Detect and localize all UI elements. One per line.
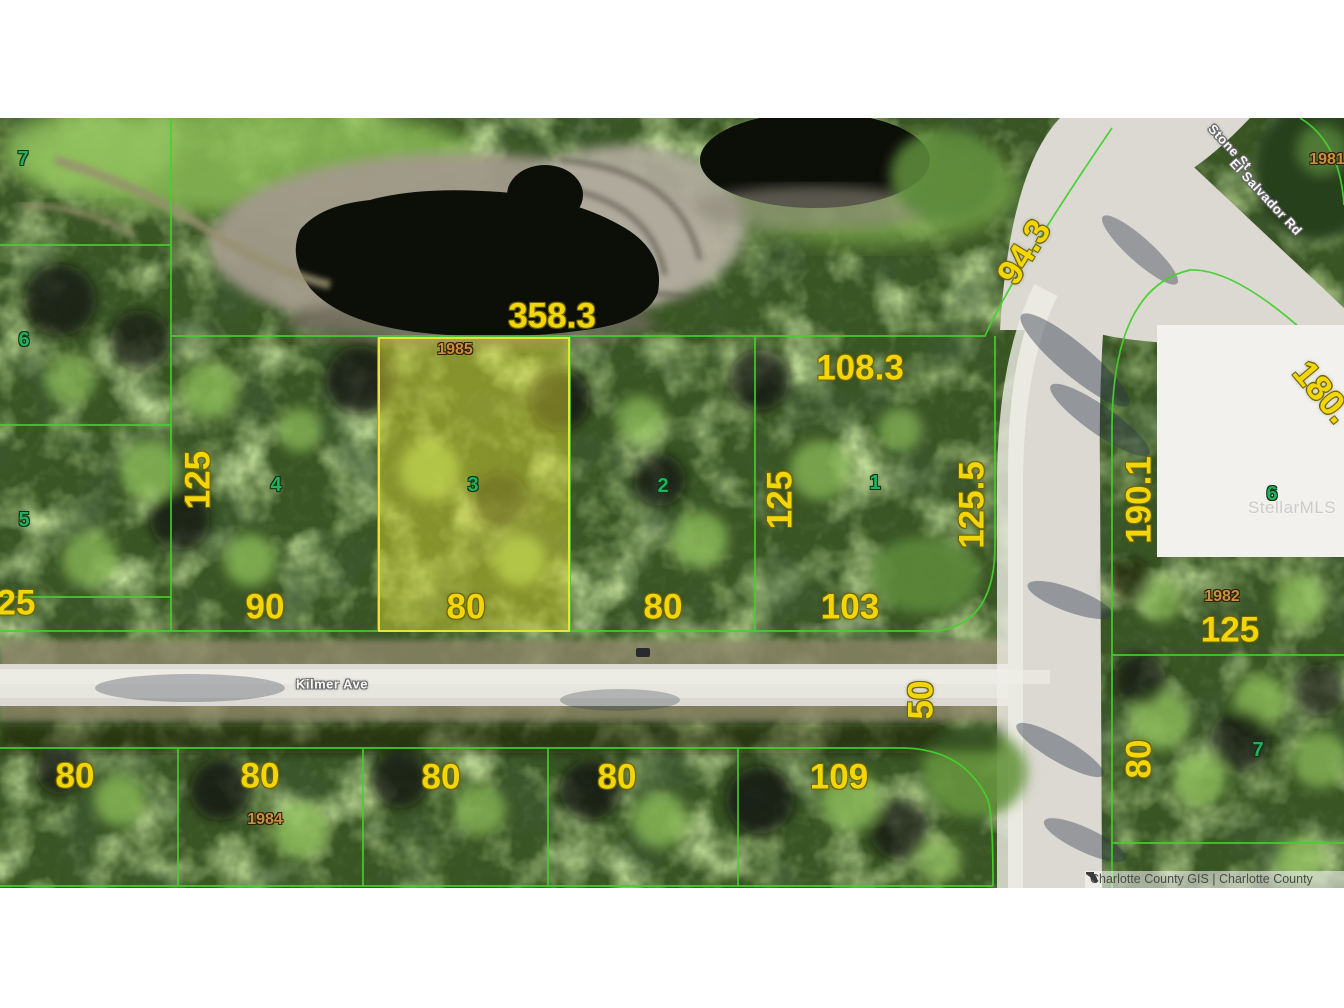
screenshot-stage: 358.3108.394.3125125125.5190.1180.259080… <box>0 0 1344 1008</box>
dimension-label-90: 90 <box>246 590 285 625</box>
parcel-number-6: 6 <box>18 330 29 350</box>
parcel-number-1: 1 <box>869 473 880 493</box>
dimension-label-80: 80 <box>56 759 95 794</box>
florida-state-icon <box>1085 871 1099 884</box>
block-year-label-1985: 1985 <box>437 342 473 358</box>
map-label-layer: 358.3108.394.3125125125.5190.1180.259080… <box>0 118 1344 888</box>
block-year-label-1984: 1984 <box>247 812 283 828</box>
parcel-number-3: 3 <box>467 475 478 495</box>
dimension-label-180-: 180. <box>1287 355 1344 430</box>
stellar-mls-watermark: StellarMLS <box>1248 498 1336 518</box>
street-name-label-kilmer-ave: Kilmer Ave <box>296 678 368 691</box>
dimension-label-190-1: 190.1 <box>1122 456 1157 544</box>
dimension-label-50: 50 <box>904 681 939 720</box>
dimension-label-108-3: 108.3 <box>816 351 904 386</box>
dimension-label-94-3: 94.3 <box>991 214 1057 290</box>
dimension-label-103: 103 <box>821 590 879 625</box>
dimension-label-125-5: 125.5 <box>955 461 990 549</box>
attribution-bar: Charlotte County GIS | Charlotte County <box>1085 871 1344 888</box>
block-year-label-1982: 1982 <box>1204 589 1240 605</box>
dimension-label-80: 80 <box>241 759 280 794</box>
street-name-label-el-salvador-rd: El Salvador Rd <box>1228 156 1305 237</box>
dimension-label-80: 80 <box>447 590 486 625</box>
dimension-label-125: 125 <box>181 451 216 509</box>
dimension-label-125: 125 <box>1201 613 1259 648</box>
parcel-number-2: 2 <box>657 476 668 496</box>
parcel-number-7: 7 <box>17 149 28 169</box>
dimension-label-80: 80 <box>644 590 683 625</box>
dimension-label-80: 80 <box>1122 740 1157 779</box>
dimension-label-358-3: 358.3 <box>508 299 596 334</box>
parcel-number-7: 7 <box>1252 740 1263 760</box>
dimension-label-80: 80 <box>598 760 637 795</box>
parcel-number-4: 4 <box>270 475 281 495</box>
dimension-label-80: 80 <box>422 760 461 795</box>
parcel-number-5: 5 <box>18 510 29 530</box>
attribution-text: Charlotte County GIS | Charlotte County <box>1090 871 1313 888</box>
dimension-label-125: 125 <box>763 471 798 529</box>
dimension-label-109: 109 <box>810 760 868 795</box>
block-year-label-1981: 1981 <box>1309 152 1344 168</box>
dimension-label-25: 25 <box>0 586 35 621</box>
gis-aerial-map[interactable]: 358.3108.394.3125125125.5190.1180.259080… <box>0 118 1344 888</box>
